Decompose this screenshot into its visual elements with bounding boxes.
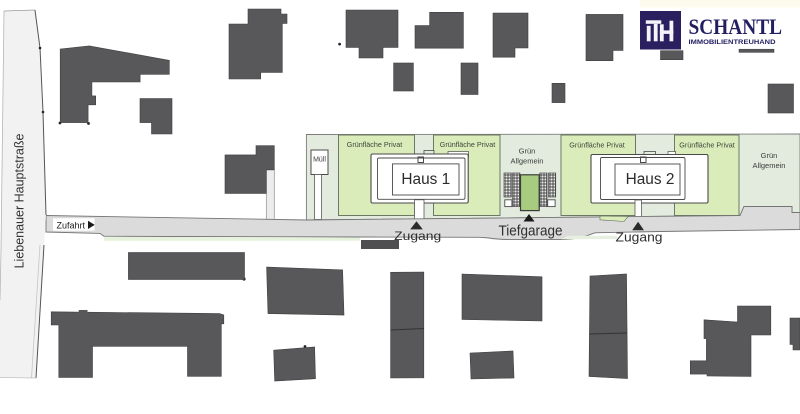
- svg-text:Grün: Grün: [519, 147, 536, 156]
- svg-text:Grünfläche Privat: Grünfläche Privat: [569, 141, 625, 150]
- svg-text:Haus 1: Haus 1: [401, 171, 450, 188]
- svg-text:Grün: Grün: [761, 151, 778, 160]
- svg-text:Zufahrt: Zufahrt: [57, 220, 86, 230]
- svg-text:Müll: Müll: [313, 157, 326, 164]
- svg-text:Allgemein: Allgemein: [753, 161, 786, 170]
- svg-text:Zugang: Zugang: [394, 229, 441, 243]
- svg-text:Zugang: Zugang: [616, 230, 663, 245]
- svg-text:Liebenauer Hauptstraße: Liebenauer Hauptstraße: [13, 134, 27, 269]
- svg-text:Tiefgarage: Tiefgarage: [499, 224, 563, 240]
- svg-text:Grünfläche Privat: Grünfläche Privat: [347, 140, 403, 149]
- svg-text:SCHANTL: SCHANTL: [689, 14, 783, 39]
- svg-text:Haus 2: Haus 2: [626, 171, 675, 188]
- svg-text:IMMOBILIENTREUHAND: IMMOBILIENTREUHAND: [689, 39, 777, 46]
- svg-text:Grünfläche Privat: Grünfläche Privat: [679, 141, 735, 150]
- svg-text:Allgemein: Allgemein: [511, 157, 544, 166]
- svg-text:Grünfläche Privat: Grünfläche Privat: [440, 140, 496, 149]
